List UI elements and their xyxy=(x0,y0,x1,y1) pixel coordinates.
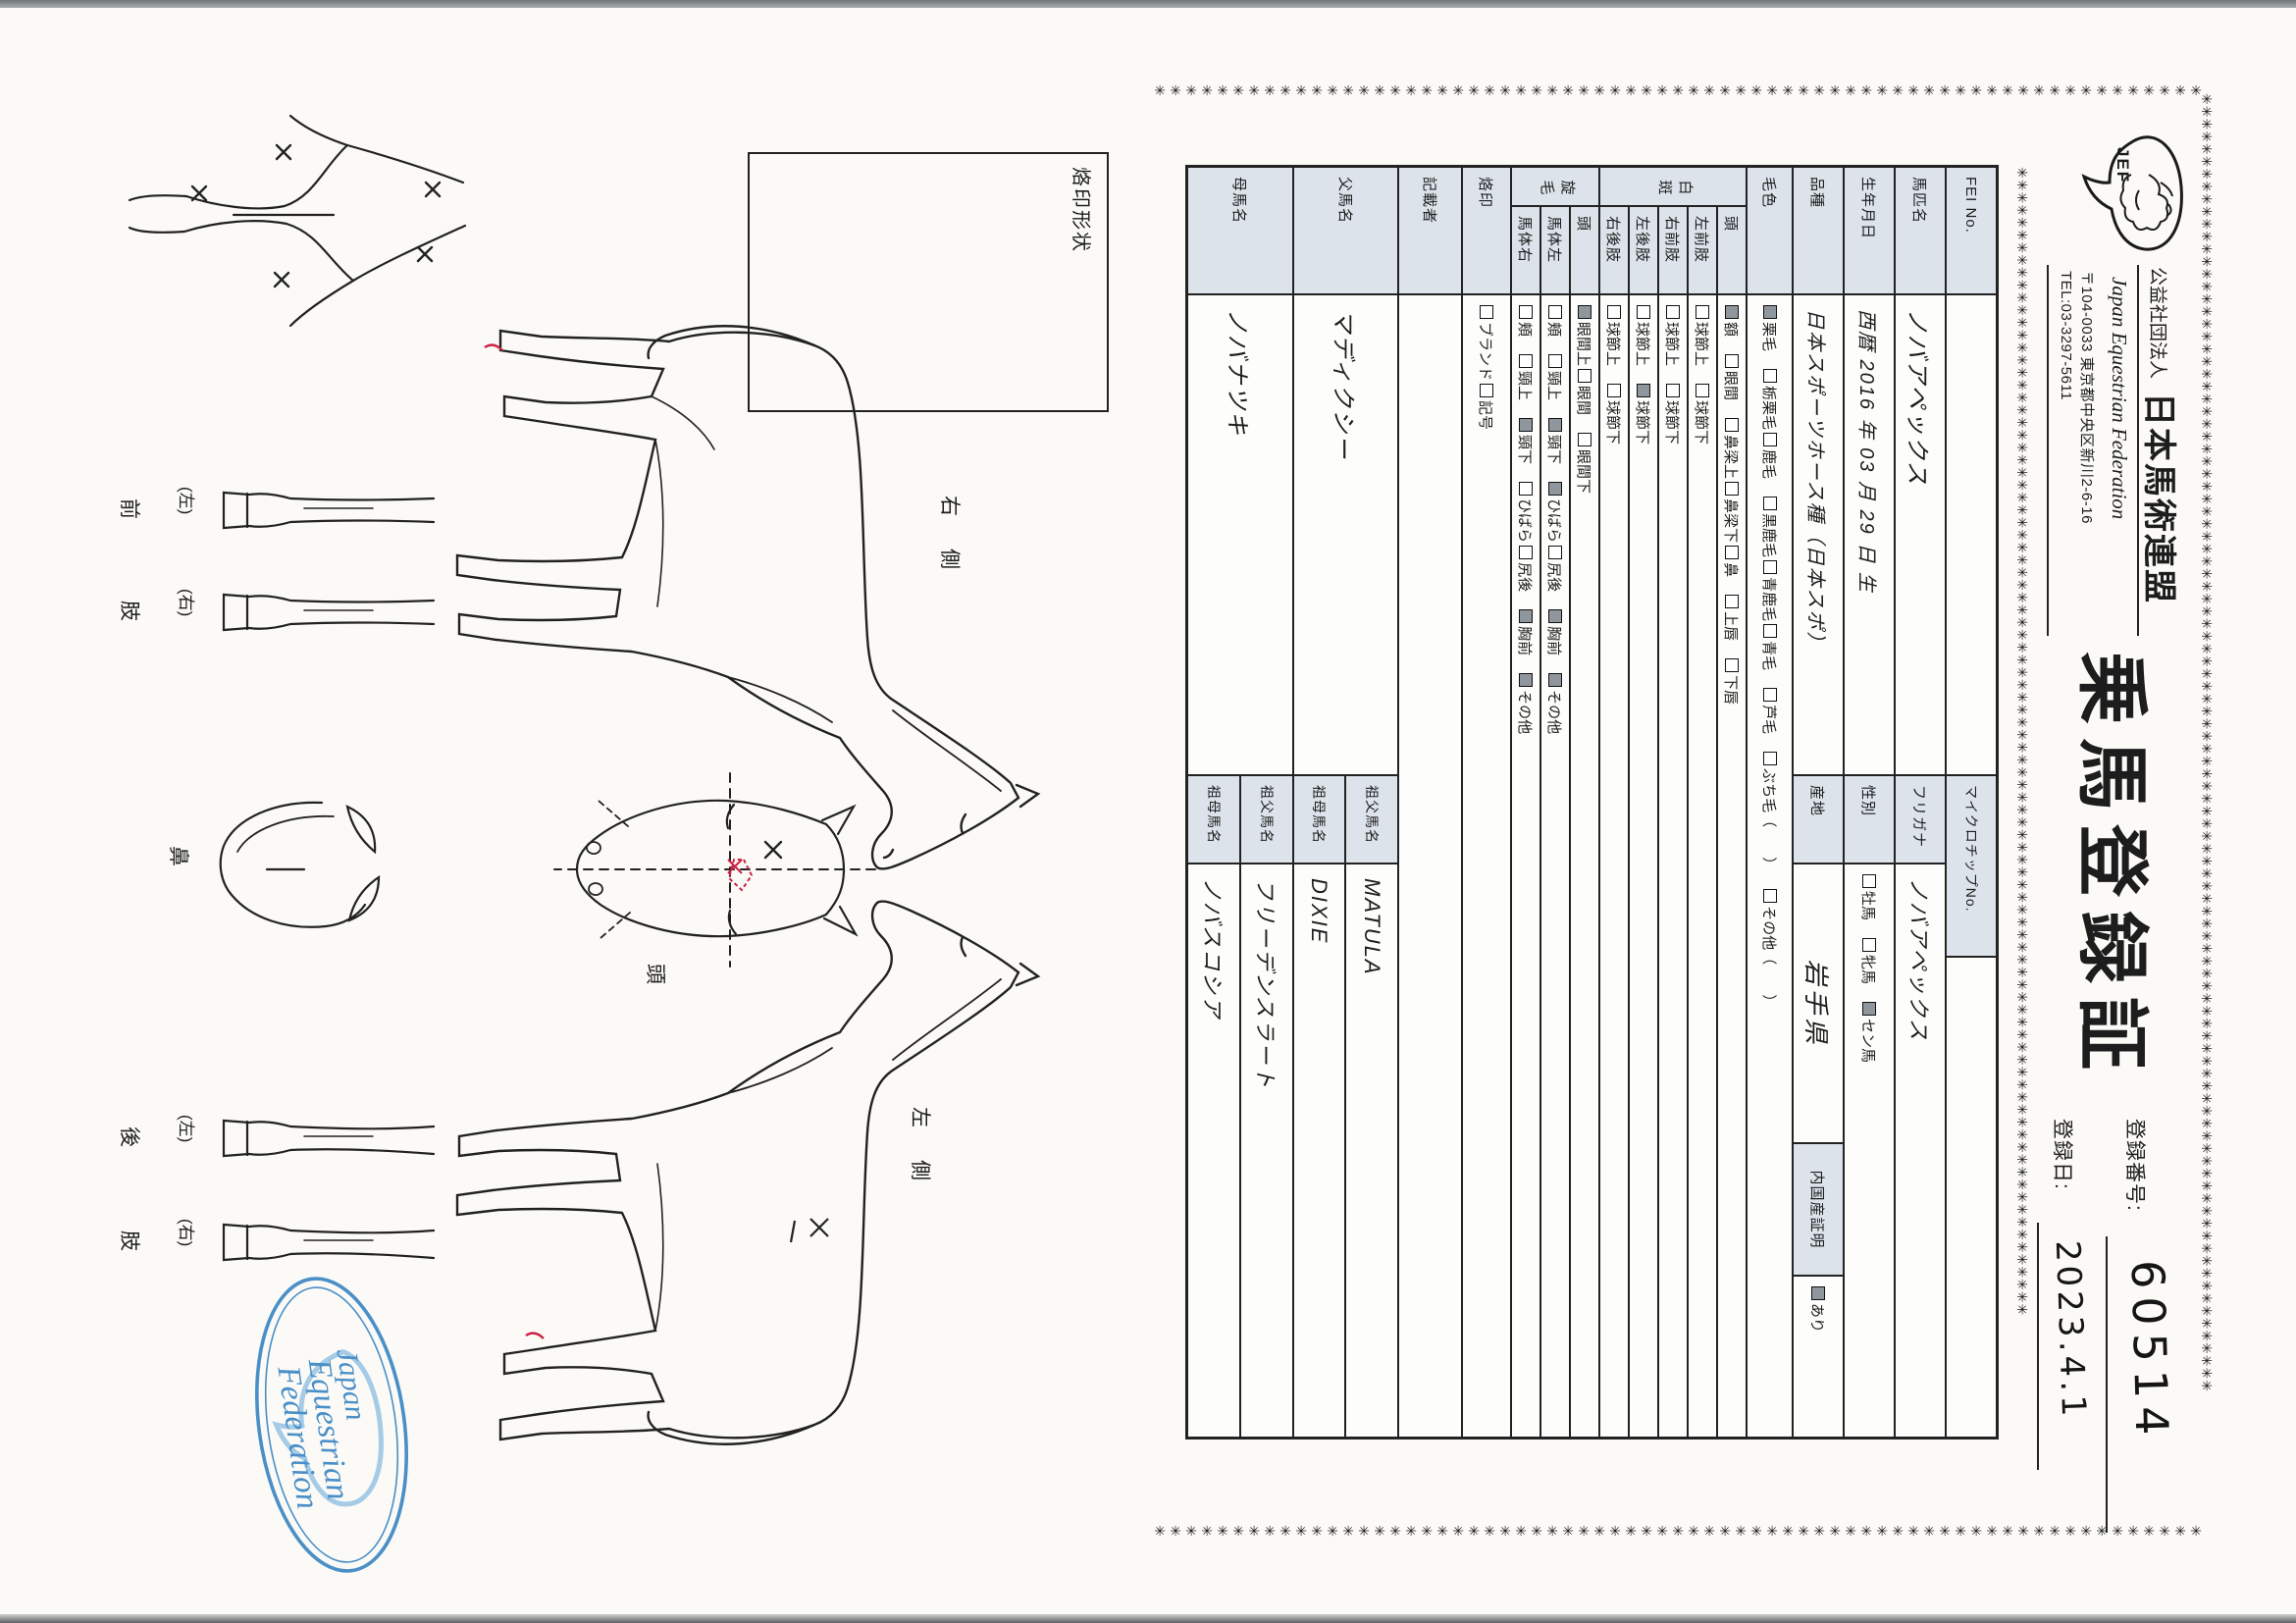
head-front-figure xyxy=(554,773,875,967)
red-whorl-mark-head xyxy=(728,860,752,890)
certificate-document: ✳✳✳✳✳✳✳✳✳✳✳✳✳✳✳✳✳✳✳✳✳✳✳✳✳✳✳✳✳✳✳✳✳✳✳✳✳✳✳✳… xyxy=(0,0,2296,1623)
left-side-horse-figure xyxy=(457,902,1038,1444)
front-limb-figures xyxy=(224,493,434,630)
horse-diagrams-art: Japan Equestrian Federation xyxy=(0,0,2296,1623)
chest-front-figure xyxy=(130,116,465,326)
red-mark-left-horse-pastern xyxy=(526,1334,544,1338)
hind-limb-figures xyxy=(224,1121,434,1260)
jef-blue-stamp: Japan Equestrian Federation xyxy=(239,1269,424,1581)
right-side-horse-figure xyxy=(457,326,1038,868)
scanned-certificate-page: { "border": { "char": "✳" }, "colors": {… xyxy=(0,0,2296,1623)
muzzle-figure xyxy=(221,803,379,927)
whorl-mark-left-horse-chest xyxy=(791,1219,828,1242)
